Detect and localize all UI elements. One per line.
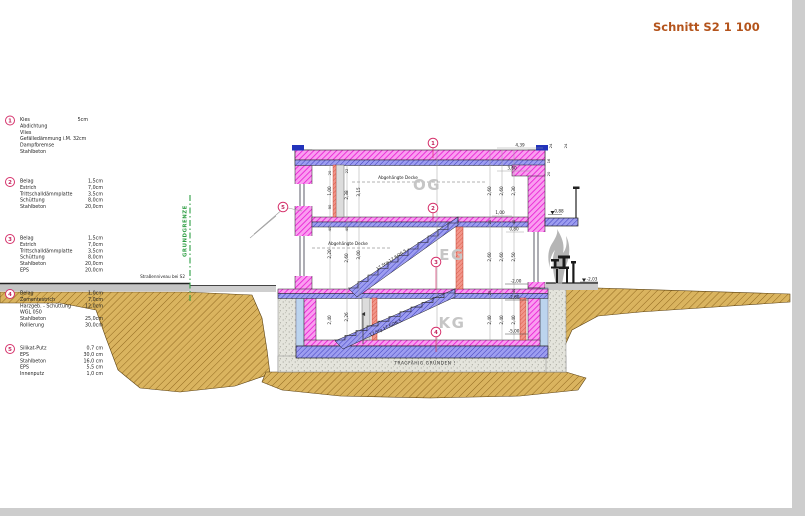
legend-value: 3,5cm: [88, 248, 103, 254]
legend-material: Zementestrich: [20, 297, 55, 303]
earth-under-foundation: [262, 372, 586, 398]
dim-rot: 2,26: [344, 312, 349, 322]
dim-rot: 2,60: [487, 252, 492, 262]
callout-leader-5c: [250, 216, 276, 238]
legend-material: Kies: [20, 117, 30, 123]
property-line-label: GRUNDGRENZE: [183, 205, 189, 257]
window-eg-left: [295, 236, 313, 276]
dim-rot: 24: [548, 143, 553, 148]
legend-value: 25,0cm: [85, 316, 103, 322]
legend-value: 7,0cm: [88, 185, 103, 191]
dim-rot: 40: [511, 288, 516, 293]
legend-value: 20,0cm: [85, 268, 103, 274]
floor-label-eg: EG: [439, 246, 465, 264]
legend-value: 1,5cm: [88, 236, 103, 242]
neighbor-ground-surface: [190, 286, 276, 293]
dim-rot: 2,50: [511, 252, 516, 262]
dim-rot: 2,60: [499, 252, 504, 262]
legend-value: 1,0 cm: [87, 371, 104, 377]
callout-num-5: 5: [281, 205, 285, 211]
window-og-left: [295, 184, 313, 206]
legend-num-1: 1: [8, 119, 12, 125]
level-kg-ceiling: -2,60: [509, 295, 520, 300]
dim-rot: 2,40: [487, 315, 492, 325]
legend-material: Belag: [20, 179, 34, 185]
legend-material: Estrich: [20, 242, 36, 248]
legend-value: 0,7 cm: [87, 346, 104, 352]
og-floor-buildup: [312, 217, 528, 222]
legend-material: EPS: [20, 365, 29, 371]
dim-rot: 20: [487, 290, 492, 295]
legend-material: Schüttung: [20, 198, 45, 204]
suspended-ceiling-label-og: Abgehängte Decke: [378, 175, 418, 180]
legend-material: Schüttung: [20, 255, 45, 261]
dim-rot: 20: [487, 219, 492, 224]
dim-rot: 2,30: [511, 186, 516, 196]
viewer-bottom-edge: [0, 508, 805, 516]
foundation-slab: [296, 346, 548, 358]
legend-material: Harzgeb. - Schüttung: [20, 303, 71, 309]
street-level-label: Straßenniveau bei S2: [140, 274, 185, 279]
legend-num-5: 5: [8, 347, 12, 353]
dim-rot: 24: [563, 143, 568, 148]
dim-rot: 90: [327, 204, 332, 209]
og-partition-wall: [336, 165, 344, 217]
legend-material: Stahlbeton: [20, 316, 46, 322]
dim-rot: 2,60: [487, 186, 492, 196]
parapet-cap-right: [536, 145, 548, 151]
legend-value: 20,0cm: [85, 204, 103, 210]
legend-material: Gefälledämmung i.M. 32cm: [20, 136, 87, 142]
level-eg-floor: -2,00: [511, 279, 522, 284]
legend-material: Dampfbremse: [20, 143, 54, 149]
legend: 1 Kies 5cm Abdichtung Vlies Gefälledämmu…: [6, 116, 104, 377]
legend-value: 20,0cm: [85, 261, 103, 267]
legend-material: Belag: [20, 236, 34, 242]
dim-rot: 20: [546, 171, 551, 176]
callout-leader-5b: [254, 212, 280, 235]
viewer-right-edge: [792, 0, 805, 516]
legend-material: EPS: [20, 352, 29, 358]
legend-value: 30,0cm: [85, 323, 103, 329]
legend-value: 8,0cm: [88, 198, 103, 204]
dim-rot: 3,15: [356, 187, 361, 197]
dim-rot: 40: [344, 226, 349, 231]
callout-num-4: 4: [434, 330, 438, 336]
street-surface: [0, 284, 190, 292]
legend-material: Stahlbeton: [20, 204, 46, 210]
suspended-ceiling-label-eg: Abgehängte Decke: [328, 241, 368, 246]
callout-num-3: 3: [434, 260, 438, 266]
legend-value: 8,0cm: [88, 255, 103, 261]
terrace-door-right: [528, 232, 546, 282]
dim-rot: 2,20: [327, 249, 332, 259]
legend-value: 5,5 cm: [87, 365, 104, 371]
legend-value: 16,0 cm: [83, 358, 103, 364]
legend-material: Belag: [20, 291, 34, 297]
legend-material: EPS: [20, 268, 29, 274]
legend-material: Vlies: [20, 130, 32, 136]
legend-value: 7,0cm: [88, 242, 103, 248]
og-red-pier: [333, 165, 336, 217]
earth-right: [548, 288, 790, 368]
eg-floor-concrete: [278, 294, 548, 299]
legend-value: 1,0cm: [88, 291, 103, 297]
outdoor-elements: [548, 187, 579, 285]
dim-rot: 40: [327, 226, 332, 231]
legend-num-4: 4: [8, 292, 12, 298]
legend-material: Stahlbeton: [20, 261, 46, 267]
legend-material: Abdichtung: [20, 123, 47, 129]
dim-rot: 2,40: [327, 315, 332, 325]
dim-rot: 2,38: [344, 190, 349, 200]
legend-material: Rollierung: [20, 323, 44, 329]
dim-rot: 2,40: [511, 315, 516, 325]
section-drawing: 4,39 3,60 1,00 0,80 -2,00 -2,60 -5,00 0,…: [0, 0, 805, 516]
parapet-cap-left: [292, 145, 304, 151]
legend-value: 7,0cm: [88, 297, 103, 303]
level-terrace: -2,03: [587, 277, 598, 282]
balcony-railing-cap: [573, 187, 580, 190]
dim-og-opening: 1,00: [495, 210, 505, 215]
balcony-slab: [545, 218, 578, 226]
dim-og-width: 3,60: [507, 166, 517, 171]
dim-rot: 40: [511, 219, 516, 224]
dim-rot: 3,00: [356, 250, 361, 260]
dim-parapet: 0,80: [509, 227, 519, 232]
legend-material: Silikat-Putz: [20, 346, 47, 352]
dim-rot: 22: [344, 168, 349, 173]
legend-material: Innenputz: [20, 371, 44, 377]
legend-value: 5cm: [78, 117, 89, 123]
terrace-pavement: [546, 283, 598, 290]
floor-label-kg: KG: [439, 314, 466, 332]
legend-num-2: 2: [8, 180, 12, 186]
dim-rot: 2,60: [344, 253, 349, 263]
roof-slab-buildup: [295, 150, 545, 160]
level-kg-floor: -5,00: [509, 329, 520, 334]
legend-value: 12,0cm: [85, 303, 103, 309]
og-floor-concrete: [312, 222, 528, 227]
page-title: Schnitt S2 1 100: [653, 20, 760, 34]
legend-material: Trittschalldämmplatte: [19, 248, 72, 254]
architectural-section-page: 4,39 3,60 1,00 0,80 -2,00 -2,60 -5,00 0,…: [0, 0, 805, 516]
dim-rot: 2,40: [499, 315, 504, 325]
level-og-floor: 0,88: [554, 209, 564, 214]
legend-material: Stahlbeton: [20, 149, 46, 155]
legend-value: 30,0 cm: [83, 352, 103, 358]
roof-edge-step: [512, 165, 545, 176]
dim-rot: 2,60: [499, 186, 504, 196]
legend-material: Stahlbeton: [20, 358, 46, 364]
dim-roof-width: 4,39: [515, 143, 525, 148]
legend-num-3: 3: [8, 237, 12, 243]
kg-column-right: [520, 298, 526, 340]
dim-rot: 16: [546, 158, 551, 163]
foundation-note: TRAGFÄHIG GRÜNDEN !: [393, 360, 455, 367]
backfill-right: [546, 288, 566, 372]
legend-material: Estrich: [20, 185, 36, 191]
legend-material: WGL 050: [20, 310, 42, 316]
legend-value: 3,5cm: [88, 191, 103, 197]
eg-floor-buildup: [278, 289, 548, 294]
callout-num-1: 1: [431, 141, 435, 147]
dim-rot: 20: [327, 170, 332, 175]
callout-num-2: 2: [431, 206, 435, 212]
legend-material: Trittschalldämmplatte: [19, 191, 72, 197]
legend-value: 1,5cm: [88, 179, 103, 185]
dim-rot: 1,00: [327, 186, 332, 196]
